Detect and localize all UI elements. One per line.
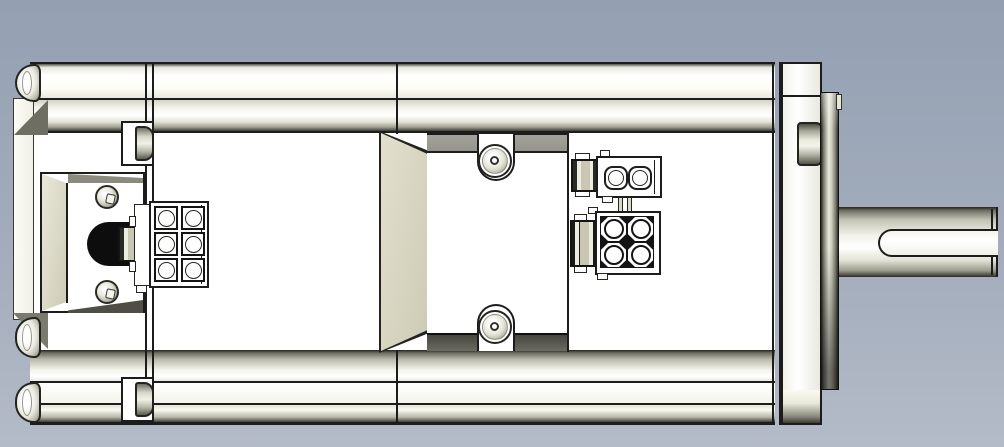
4-pin-crimp: [570, 220, 598, 267]
shaft-keyway[interactable]: [878, 229, 998, 257]
mounting-flange[interactable]: [820, 92, 839, 390]
pin-socket: [628, 243, 653, 267]
4-pin-crimp-tab: [574, 266, 587, 273]
2-pin-edge-step: [654, 160, 655, 194]
2-pin-crimp: [571, 159, 599, 192]
cad-viewport[interactable]: [0, 0, 1004, 447]
mid-seam-bottom: [396, 350, 398, 425]
2-pin-bottom-lug: [602, 196, 613, 203]
flange-step: [836, 94, 842, 110]
pin-socket: [604, 166, 628, 190]
pin-socket: [154, 258, 178, 282]
housing-top-rib: [30, 64, 775, 100]
rear-housing-screw-top[interactable]: [95, 185, 119, 209]
cover-left-face: [381, 133, 427, 351]
cap-ellipse: [22, 324, 32, 351]
4-pin-connector[interactable]: [595, 211, 661, 275]
hex-socket-icon: [105, 288, 116, 300]
pin-socket: [601, 217, 626, 241]
cover-screw-bottom-hole: [490, 322, 499, 331]
pin-socket: [181, 232, 205, 256]
hex-socket-icon: [105, 193, 116, 205]
mid-seam-top: [396, 62, 398, 134]
front-cap-top-line: [781, 95, 822, 97]
front-cap-seam: [772, 62, 781, 425]
cover-screw-top-hole: [490, 156, 499, 165]
seam-clamp-top-pin: [135, 126, 154, 161]
6-pin-connector-foot: [136, 285, 147, 293]
6-pin-pin-grid: [154, 206, 205, 282]
pin-socket: [181, 206, 205, 230]
front-end-cap[interactable]: [781, 62, 822, 425]
terminal-cover[interactable]: [379, 131, 569, 353]
rear-housing-left-face: [42, 174, 68, 311]
6-pin-connector-lug: [129, 216, 136, 227]
pin-socket: [628, 166, 652, 190]
rear-housing-screw-bottom[interactable]: [95, 280, 119, 304]
cover-right-edge: [567, 132, 569, 352]
4-pin-pin-grid: [600, 216, 654, 268]
pin-socket: [181, 258, 205, 282]
cap-ellipse: [22, 389, 32, 416]
6-pin-connector-lug: [129, 261, 136, 272]
pin-socket: [628, 217, 653, 241]
front-cap-chamfer: [783, 390, 820, 423]
pin-socket: [154, 206, 178, 230]
seam-clamp-bottom-pin: [135, 382, 154, 417]
2-pin-connector[interactable]: [596, 156, 662, 198]
cap-ellipse: [22, 71, 32, 95]
6-pin-connector[interactable]: [149, 201, 209, 288]
pin-socket: [601, 243, 626, 267]
pin-socket: [154, 232, 178, 256]
rear-housing-face-edge: [66, 183, 68, 303]
4-pin-bottom-lug: [597, 273, 608, 280]
